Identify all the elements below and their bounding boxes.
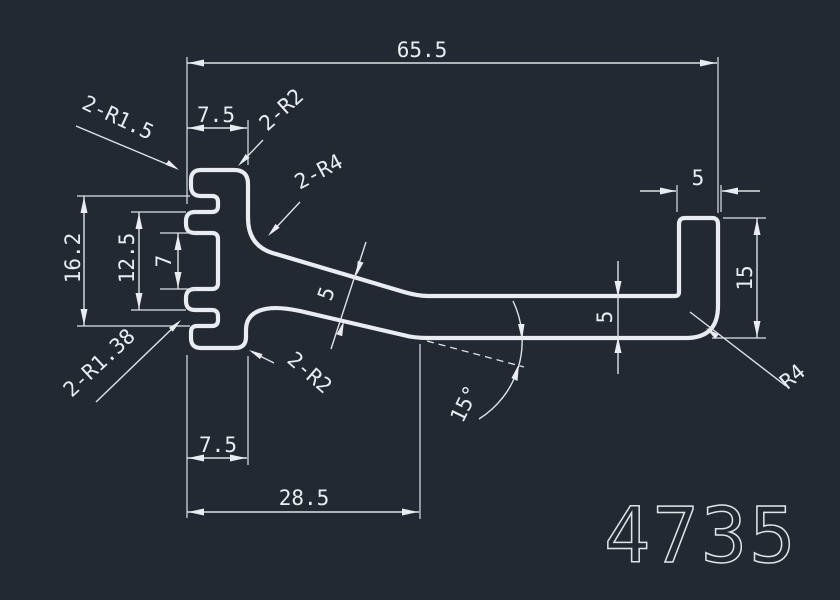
dim-arm-thickness-slant: 5: [313, 242, 366, 349]
cad-canvas: 65.5 7.5 16.2 12.5 7: [0, 0, 840, 600]
part-number: 4735: [604, 492, 797, 581]
radius-text: R4: [775, 359, 810, 394]
angle-reference-line: [427, 341, 524, 367]
dimension-text: 12.5: [115, 233, 139, 284]
arrowhead: [166, 160, 179, 170]
arrowhead: [660, 188, 676, 195]
dim-bottom-tooth-width: 7.5: [187, 355, 248, 518]
arrowhead: [136, 293, 143, 309]
arrowhead: [188, 509, 204, 516]
arrowhead: [356, 261, 364, 276]
dimension-text: 65.5: [397, 38, 448, 62]
profile-outline: [186, 170, 718, 348]
dimension-text: 7.5: [199, 433, 237, 457]
dimension-text: 5: [593, 311, 617, 324]
radius-text: 2-R2: [283, 347, 337, 398]
arrowhead: [700, 60, 716, 67]
dimension-text: 15: [733, 265, 757, 290]
dim-top-tooth-width: 7.5: [187, 103, 248, 165]
dim-arm-thickness: 5: [593, 261, 622, 374]
arrowhead: [754, 219, 761, 235]
arrowhead: [81, 197, 88, 213]
dimension-text: 5: [692, 166, 705, 190]
leader-radius-top-left: 2-R1.5: [76, 91, 179, 170]
leader-radius-bottom-right: R4: [690, 312, 810, 394]
leader-radius-bottom-left: 2-R1.38: [59, 320, 181, 402]
dim-slot-height: 7: [152, 233, 196, 289]
arrowhead: [249, 350, 263, 359]
arrowhead: [722, 188, 738, 195]
dimension-text: 28.5: [279, 486, 330, 510]
arrowhead: [175, 234, 182, 250]
arrowhead: [136, 213, 143, 229]
arrowhead: [188, 60, 204, 67]
arrowhead: [402, 509, 418, 516]
cad-viewport: 65.5 7.5 16.2 12.5 7: [0, 0, 840, 600]
dim-arm-angle: 15°: [427, 301, 525, 426]
dimension-text: 7.5: [197, 103, 235, 127]
radius-text: 2-R1.5: [79, 91, 158, 145]
dimension-text: 16.2: [61, 233, 85, 284]
radius-text: 2-R4: [291, 149, 347, 194]
arrowhead: [754, 321, 761, 337]
arrowhead: [175, 272, 182, 288]
dimension-text: 7: [152, 255, 176, 268]
leader-line: [690, 312, 786, 386]
dim-flange-width: 5: [640, 166, 760, 212]
leader-radius-arm-fillet: 2-R4: [268, 149, 347, 236]
radius-text: 2-R2: [254, 84, 308, 136]
radius-text: 2-R1.38: [59, 324, 140, 402]
dimension-text: 15°: [446, 382, 484, 427]
angle-arc: [479, 301, 522, 419]
leader-radius-bottom-corner: 2-R2: [249, 347, 337, 398]
arrowhead: [512, 364, 520, 381]
dimension-text: 5: [313, 284, 340, 304]
arrowhead: [81, 309, 88, 325]
